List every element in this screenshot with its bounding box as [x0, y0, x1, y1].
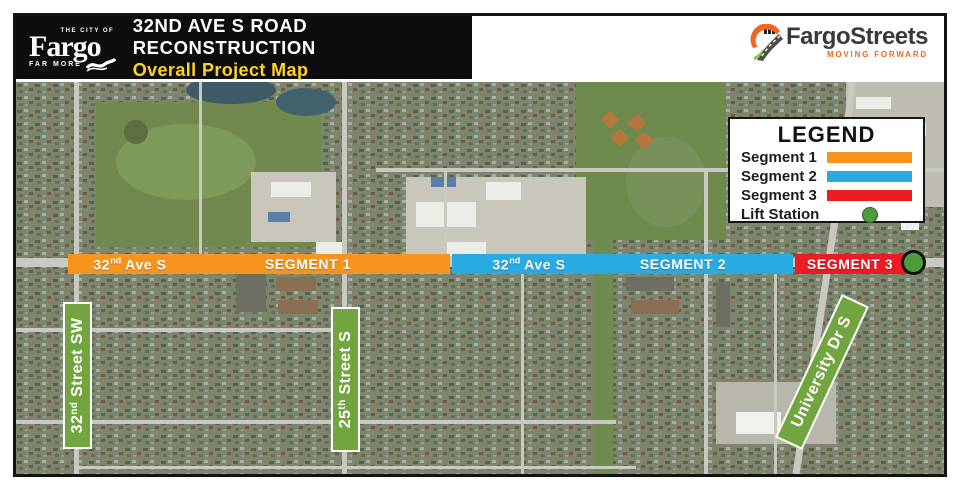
legend-title: LEGEND — [730, 122, 923, 148]
legend-row-segment-2: Segment 2 — [730, 167, 923, 186]
legend-row-segment-1: Segment 1 — [730, 148, 923, 167]
city-of-fargo-logo: THE CITY OF Fargo FAR MORE — [29, 28, 118, 68]
legend-swatch-segment-1 — [827, 152, 912, 163]
poster-frame: THE CITY OF Fargo FAR MORE 32ND AVE S RO… — [13, 13, 947, 477]
street-label-25th-street-s: 25th Street S — [331, 307, 360, 452]
project-map: 32nd Ave S SEGMENT 1 32nd Ave S SEGMENT … — [16, 82, 944, 474]
road-swoosh-icon — [86, 56, 116, 72]
street-label-32nd-street-sw: 32nd Street SW — [63, 302, 92, 449]
page-title: 32ND AVE S ROAD RECONSTRUCTION — [133, 15, 472, 59]
legend-lift-station-dot-icon — [862, 207, 878, 223]
segment-2-bar: 32nd Ave S SEGMENT 2 — [452, 254, 793, 274]
segment-1-bar: 32nd Ave S SEGMENT 1 — [68, 254, 450, 274]
legend-row-lift-station: Lift Station — [730, 205, 923, 224]
segment-2-street-name: 32nd Ave S — [492, 256, 565, 273]
segment-3-bar: SEGMENT 3 — [795, 254, 911, 274]
fargostreets-icon — [750, 24, 786, 62]
legend-swatch-segment-3 — [827, 190, 912, 201]
fargostreets-logo: FargoStreets MOVING FORWARD — [750, 24, 928, 62]
header: THE CITY OF Fargo FAR MORE 32ND AVE S RO… — [16, 16, 944, 82]
legend-label-segment-2: Segment 2 — [741, 168, 817, 185]
legend: LEGEND Segment 1 Segment 2 Segment 3 Lif… — [728, 117, 925, 223]
header-title-band: THE CITY OF Fargo FAR MORE 32ND AVE S RO… — [16, 16, 472, 79]
page-subtitle: Overall Project Map — [133, 60, 472, 81]
legend-label-lift-station: Lift Station — [741, 206, 819, 223]
segment-1-label: SEGMENT 1 — [265, 256, 351, 272]
segment-3-label: SEGMENT 3 — [807, 256, 893, 272]
legend-row-segment-3: Segment 3 — [730, 186, 923, 205]
fargostreets-wordmark: FargoStreets — [786, 24, 928, 50]
legend-label-segment-3: Segment 3 — [741, 187, 817, 204]
fargostreets-tagline: MOVING FORWARD — [827, 50, 928, 59]
legend-label-segment-1: Segment 1 — [741, 149, 817, 166]
legend-swatch-segment-2 — [827, 171, 912, 182]
segment-1-street-name: 32nd Ave S — [93, 256, 166, 273]
title-block: 32ND AVE S ROAD RECONSTRUCTION Overall P… — [133, 15, 472, 81]
lift-station-marker — [901, 250, 926, 275]
segment-2-label: SEGMENT 2 — [640, 256, 726, 272]
